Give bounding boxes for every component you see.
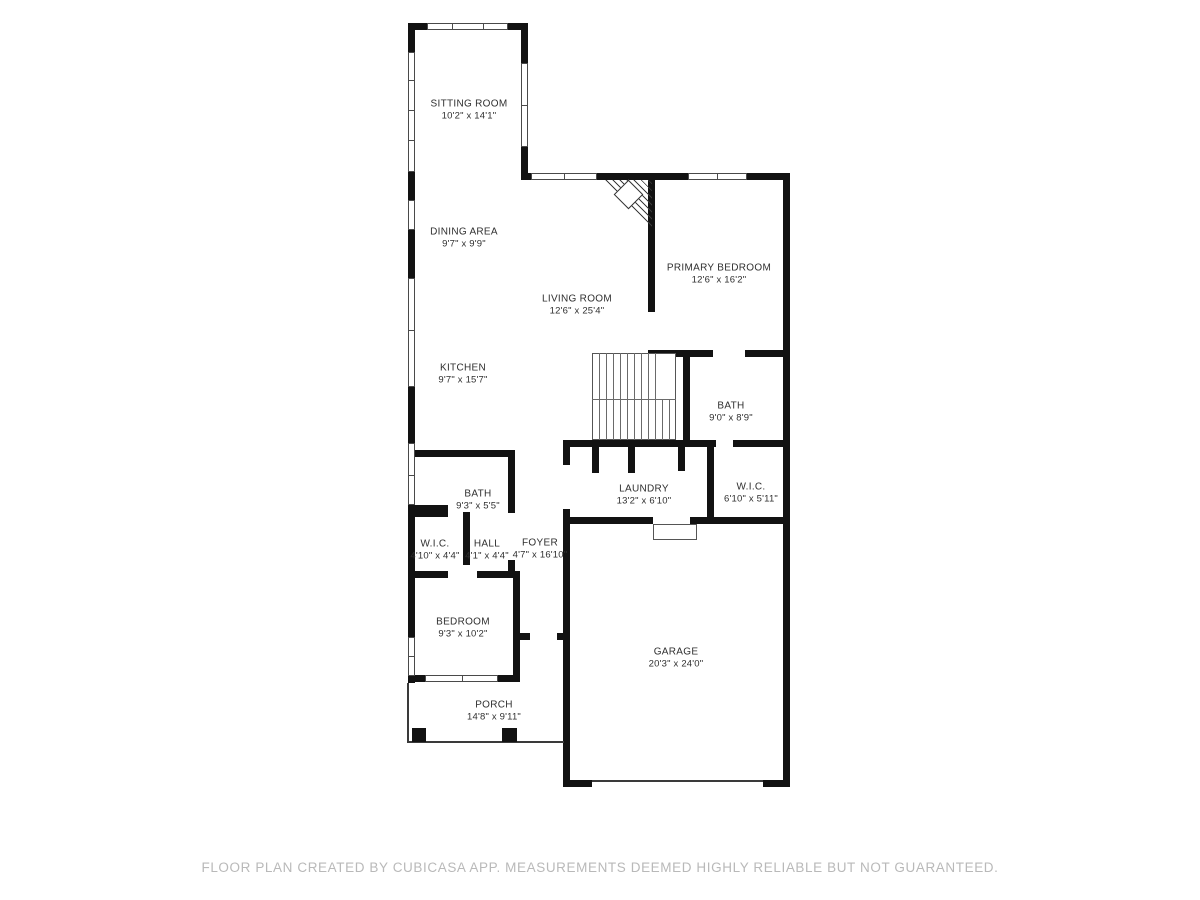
wall (592, 447, 599, 473)
wall (678, 447, 685, 471)
stair-tread (620, 399, 621, 440)
room-label-sitting-room: SITTING ROOM 10'2" x 14'1" (431, 99, 508, 122)
stair-tread (634, 353, 635, 399)
window-divider (408, 330, 415, 331)
room-dimensions: 13'2" x 6'10" (617, 496, 672, 507)
window (427, 23, 508, 30)
room-name: DINING AREA (430, 227, 498, 239)
room-name: W.I.C. (410, 539, 459, 551)
room-dimensions: 14'8" x 9'11" (467, 712, 521, 723)
stair-tread (627, 399, 628, 440)
room-name: GARAGE (649, 647, 704, 659)
room-name: SITTING ROOM (431, 99, 508, 111)
room-name: W.I.C. (724, 482, 778, 494)
stair-tread (627, 353, 628, 399)
room-dimensions: 9'7" x 9'9" (430, 239, 498, 250)
room-dimensions: 9'7" x 15'7" (438, 375, 487, 386)
stair-tread (599, 353, 600, 399)
room-label-garage: GARAGE 20'3" x 24'0" (649, 647, 704, 670)
wall (783, 173, 790, 787)
room-name: BATH (709, 401, 753, 413)
room-label-living-room: LIVING ROOM 12'6" x 25'4" (542, 294, 612, 317)
room-dimensions: 4'1" x 4'4" (465, 551, 509, 562)
wall (408, 450, 515, 457)
room-label-wic-right: W.I.C. 6'10" x 5'11" (724, 482, 778, 505)
room-label-wic-left: W.I.C. 4'10" x 4'4" (410, 539, 459, 562)
stair-tread (634, 399, 635, 440)
stair-tread (641, 353, 642, 399)
room-dimensions: 10'2" x 14'1" (431, 111, 508, 122)
wall (570, 517, 653, 524)
stair-tread (648, 353, 649, 399)
wall (683, 357, 690, 440)
room-name: LAUNDRY (617, 484, 672, 496)
room-dimensions: 9'3" x 5'5" (456, 501, 500, 512)
window (408, 443, 415, 505)
room-dimensions: 9'3" x 10'2" (436, 629, 490, 640)
room-dimensions: 9'0" x 8'9" (709, 413, 753, 424)
window-divider (521, 105, 528, 106)
window-divider (408, 475, 415, 476)
room-label-foyer: FOYER 4'7" x 16'10" (513, 538, 568, 561)
wall (563, 440, 716, 447)
room-name: FOYER (513, 538, 568, 550)
wall (408, 571, 448, 578)
wall (628, 447, 635, 473)
room-label-dining-area: DINING AREA 9'7" x 9'9" (430, 227, 498, 250)
wall (513, 571, 520, 682)
wall (557, 633, 570, 640)
room-name: LIVING ROOM (542, 294, 612, 306)
room-name: PRIMARY BEDROOM (667, 263, 771, 275)
wall (733, 440, 790, 447)
room-dimensions: 12'6" x 25'4" (542, 306, 612, 317)
garage-step (653, 524, 697, 540)
floor-plan: SITTING ROOM 10'2" x 14'1" DINING AREA 9… (0, 0, 1200, 900)
porch-post (412, 728, 426, 742)
room-label-porch: PORCH 14'8" x 9'11" (467, 700, 521, 723)
porch-edge-left (407, 683, 409, 742)
footer-disclaimer: FLOOR PLAN CREATED BY CUBICASA APP. MEAS… (0, 860, 1200, 875)
room-name: HALL (465, 539, 509, 551)
window-divider (408, 656, 415, 657)
wall (408, 505, 448, 517)
window-divider (408, 140, 415, 141)
window-divider (462, 675, 463, 682)
stair-tread (606, 399, 607, 440)
porch-post (502, 728, 517, 742)
stair-tread (669, 399, 670, 440)
window (408, 200, 415, 230)
garage-door-line (592, 780, 763, 782)
room-dimensions: 4'7" x 16'10" (513, 550, 568, 561)
stair-tread (606, 353, 607, 399)
room-dimensions: 4'10" x 4'4" (410, 551, 459, 562)
window-divider (408, 110, 415, 111)
window-divider (717, 173, 718, 180)
room-label-kitchen: KITCHEN 9'7" x 15'7" (438, 363, 487, 386)
wall (745, 350, 790, 357)
room-label-primary-bedroom: PRIMARY BEDROOM 12'6" x 16'2" (667, 263, 771, 286)
room-label-bath-upper: BATH 9'0" x 8'9" (709, 401, 753, 424)
window-divider (483, 23, 484, 30)
room-name: KITCHEN (438, 363, 487, 375)
wall (513, 633, 530, 640)
stair-tread (613, 399, 614, 440)
room-name: BATH (456, 489, 500, 501)
window-divider (408, 80, 415, 81)
room-name: BEDROOM (436, 617, 490, 629)
porch-edge-bottom (407, 741, 564, 743)
wall (563, 447, 570, 465)
room-dimensions: 6'10" x 5'11" (724, 494, 778, 505)
window-divider (452, 23, 453, 30)
room-label-bath-lower: BATH 9'3" x 5'5" (456, 489, 500, 512)
window-divider (564, 173, 565, 180)
wall (763, 780, 790, 787)
wall (508, 450, 515, 513)
stair-tread (641, 399, 642, 440)
wall (565, 780, 592, 787)
room-label-laundry: LAUNDRY 13'2" x 6'10" (617, 484, 672, 507)
wall (563, 509, 570, 522)
stairs-landing-line (655, 353, 656, 399)
room-dimensions: 20'3" x 24'0" (649, 659, 704, 670)
wall (690, 517, 790, 524)
stair-tread (620, 353, 621, 399)
room-label-bedroom: BEDROOM 9'3" x 10'2" (436, 617, 490, 640)
window (408, 52, 415, 172)
stair-tread (655, 399, 656, 440)
stair-tread (662, 399, 663, 440)
room-label-hall: HALL 4'1" x 4'4" (465, 539, 509, 562)
stair-tread (613, 353, 614, 399)
stair-tread (599, 399, 600, 440)
stair-tread (648, 399, 649, 440)
window (408, 278, 415, 387)
room-name: PORCH (467, 700, 521, 712)
wall (707, 447, 714, 517)
room-dimensions: 12'6" x 16'2" (667, 275, 771, 286)
